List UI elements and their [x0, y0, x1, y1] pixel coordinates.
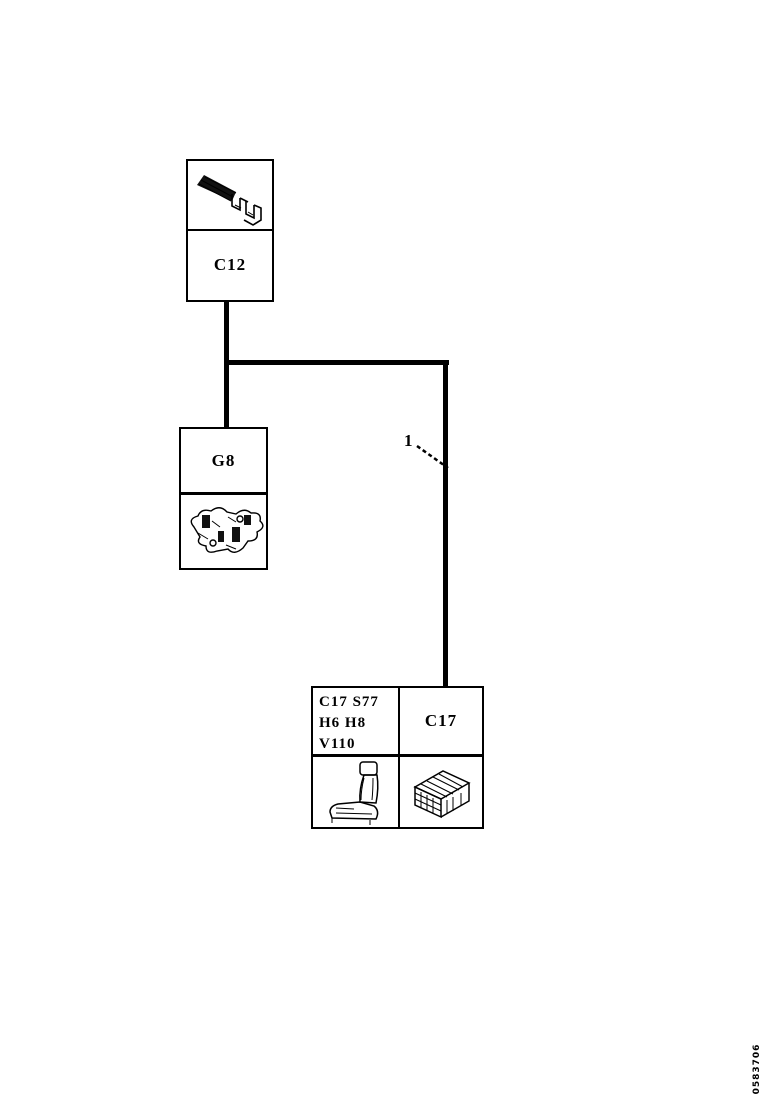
- doc-number: 0583706: [752, 1038, 762, 1100]
- label-c17: C17: [425, 711, 457, 731]
- codes-line-3: V110: [319, 734, 396, 755]
- label-g8: G8: [212, 451, 236, 471]
- codes-line-2: H6 H8: [319, 713, 396, 734]
- wire-branch-to-c17: [443, 360, 448, 690]
- label-c12: C12: [214, 255, 246, 275]
- component-box-c17-group: C17 S77 H6 H8 V110 C17: [311, 686, 484, 829]
- connector-icon: [400, 757, 482, 827]
- component-box-c12: C12: [186, 159, 274, 302]
- component-box-g8: G8: [179, 427, 268, 570]
- wire-branch-horizontal: [224, 360, 449, 365]
- callout-1-leader-line: [403, 430, 453, 472]
- terminal-icon: [188, 161, 272, 231]
- diagram-page: 1 C12 G8: [0, 0, 778, 1100]
- option-codes-cell: C17 S77 H6 H8 V110: [313, 688, 400, 757]
- seat-icon: [313, 757, 400, 827]
- codes-line-1: C17 S77: [319, 692, 396, 713]
- harness-bracket-icon: [181, 495, 266, 565]
